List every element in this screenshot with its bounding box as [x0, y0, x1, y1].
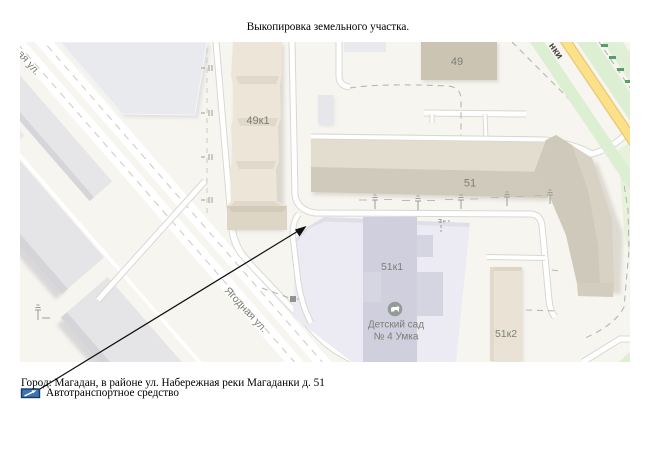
- svg-text:Детский сад: Детский сад: [368, 320, 424, 331]
- svg-text:51к1: 51к1: [381, 261, 403, 273]
- svg-text:49к1: 49к1: [246, 115, 269, 127]
- svg-text:№ 4 Умка: № 4 Умка: [374, 332, 419, 343]
- svg-text:51: 51: [464, 178, 476, 190]
- svg-text:49: 49: [451, 56, 463, 68]
- svg-text:51к2: 51к2: [495, 328, 517, 340]
